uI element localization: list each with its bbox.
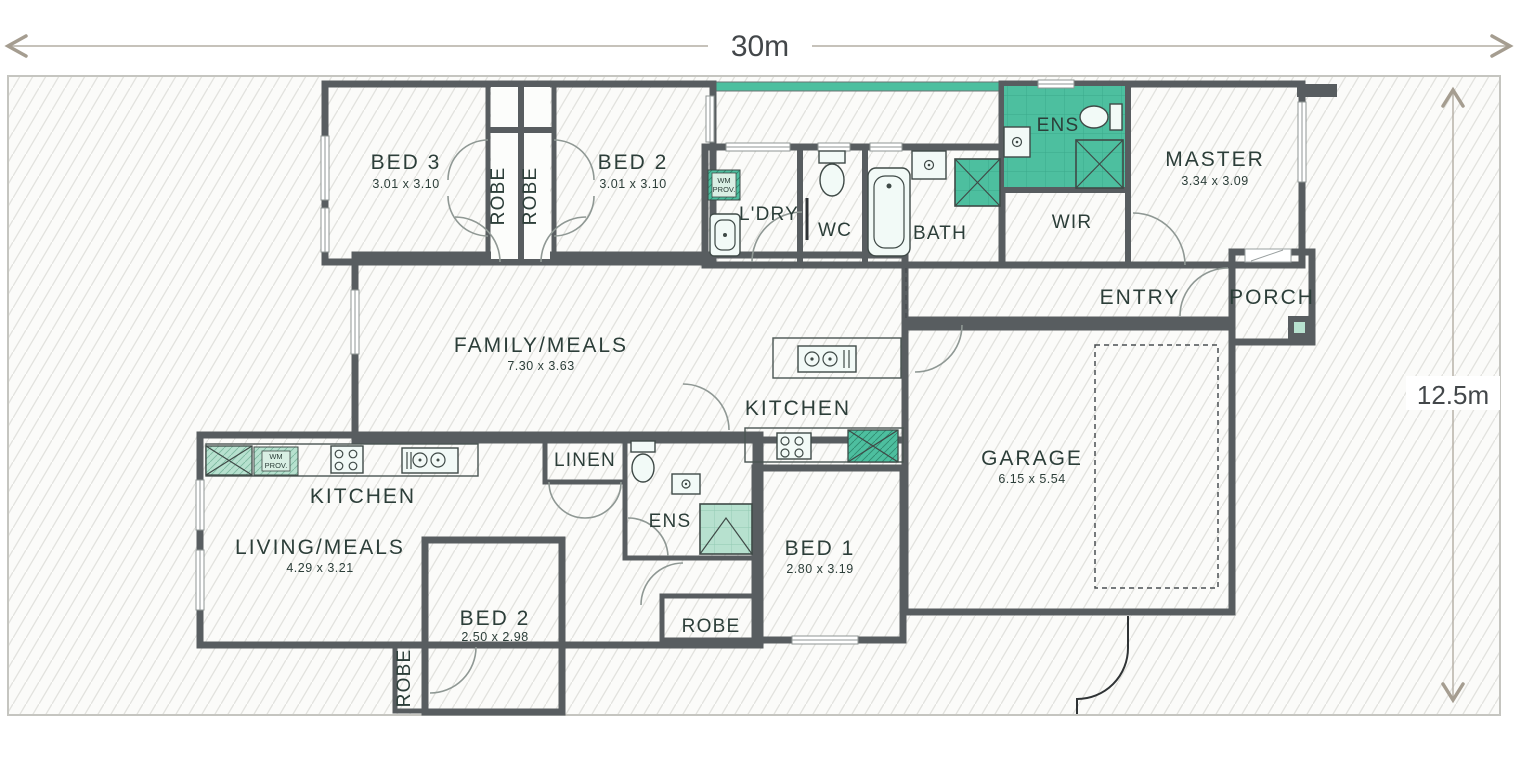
family-size: 7.30 x 3.63 [507, 359, 574, 373]
bed1-size: 2.80 x 3.19 [786, 562, 853, 576]
wall-stub [1297, 84, 1337, 97]
site-depth-label: 12.5m [1417, 380, 1489, 410]
robe-closet-right [523, 87, 550, 127]
ens-upper-label: ENS [1037, 115, 1080, 136]
wm-prov-lower-line2: PROV. [265, 461, 288, 470]
wm-prov-upper-line2: PROV. [713, 185, 736, 194]
bed1-label: BED 1 [785, 537, 856, 560]
bed2-lower-label: BED 2 [460, 607, 531, 630]
garage-size: 6.15 x 5.54 [998, 472, 1065, 486]
family-label: FAMILY/MEALS [454, 334, 628, 357]
window [321, 208, 329, 252]
master-label: MASTER [1165, 148, 1265, 171]
robe-bed2-label: ROBE [520, 167, 541, 226]
kitchen-lower-label: KITCHEN [310, 485, 416, 508]
toilet-wc [819, 151, 845, 163]
bed2-lower-size: 2.50 x 2.98 [461, 630, 528, 644]
garage-label: GARAGE [981, 447, 1083, 470]
wir-label: WIR [1052, 212, 1093, 233]
living-size: 4.29 x 3.21 [286, 561, 353, 575]
robe-bed2-lower-label: ROBE [394, 649, 415, 708]
linen-label: LINEN [554, 450, 616, 471]
site-width-label: 30m [731, 30, 789, 63]
window [706, 96, 714, 142]
bed3-size: 3.01 x 3.10 [372, 177, 439, 191]
master-size: 3.34 x 3.09 [1181, 174, 1248, 188]
window [321, 136, 329, 200]
toilet-ens-upper [1110, 104, 1122, 130]
robe-closet-left [491, 87, 518, 127]
entry-label: ENTRY [1100, 286, 1181, 309]
porch-label: PORCH [1229, 286, 1315, 309]
window [196, 550, 204, 610]
floor-plan-svg: 30m 12.5m [0, 0, 1533, 772]
wc-label: WC [818, 220, 852, 241]
porch-pillar-core [1294, 322, 1305, 333]
window [726, 143, 790, 151]
wm-prov-lower-line1: WM [269, 452, 282, 461]
ldry-label: L'DRY [739, 204, 799, 225]
floor-plan-canvas: 30m 12.5m [0, 0, 1533, 772]
robe-bed1-label: ROBE [682, 616, 741, 637]
bed2-upper-label: BED 2 [598, 151, 669, 174]
living-label: LIVING/MEALS [235, 536, 405, 559]
toilet-ens-lower [631, 441, 655, 452]
window [792, 636, 858, 644]
shower-ens-lower [700, 504, 752, 554]
eave-line [713, 82, 1002, 91]
site-width-dimension: 30m [8, 30, 1510, 63]
window [1038, 80, 1074, 88]
window [196, 480, 204, 530]
window [1298, 102, 1306, 182]
bed3-label: BED 3 [371, 151, 442, 174]
island-sink [798, 346, 856, 372]
window [818, 143, 850, 151]
bath-label: BATH [913, 223, 967, 244]
bed2-upper-size: 3.01 x 3.10 [599, 177, 666, 191]
ens-lower-label: ENS [649, 511, 692, 532]
robe-bed3-label: ROBE [488, 167, 509, 226]
wm-prov-upper-line1: WM [717, 176, 730, 185]
window [351, 290, 359, 354]
kitchen-upper-label: KITCHEN [745, 397, 851, 420]
window [870, 143, 902, 151]
